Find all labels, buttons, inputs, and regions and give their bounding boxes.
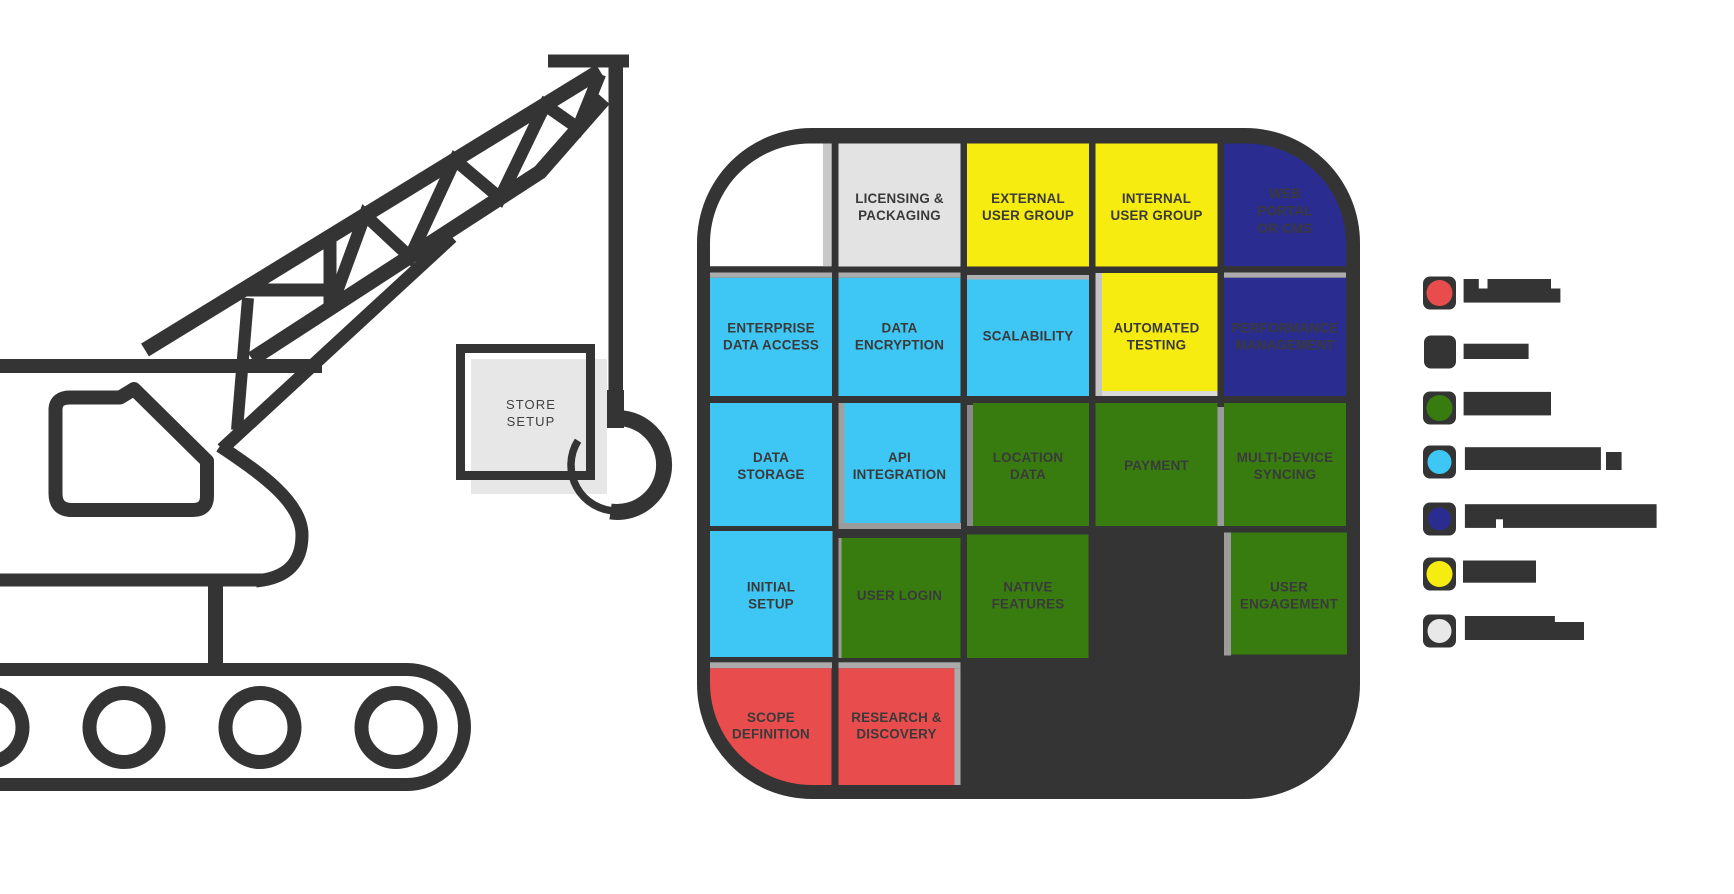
svg-text:SCALABILITY: SCALABILITY [983,329,1074,344]
svg-text:USER LOGIN: USER LOGIN [857,588,942,603]
svg-text:SETUP: SETUP [507,414,556,429]
svg-text:RESEARCH &DISCOVERY: RESEARCH &DISCOVERY [851,710,942,742]
svg-text:STORE: STORE [506,397,556,412]
svg-text:PAYMENT: PAYMENT [1124,458,1189,473]
